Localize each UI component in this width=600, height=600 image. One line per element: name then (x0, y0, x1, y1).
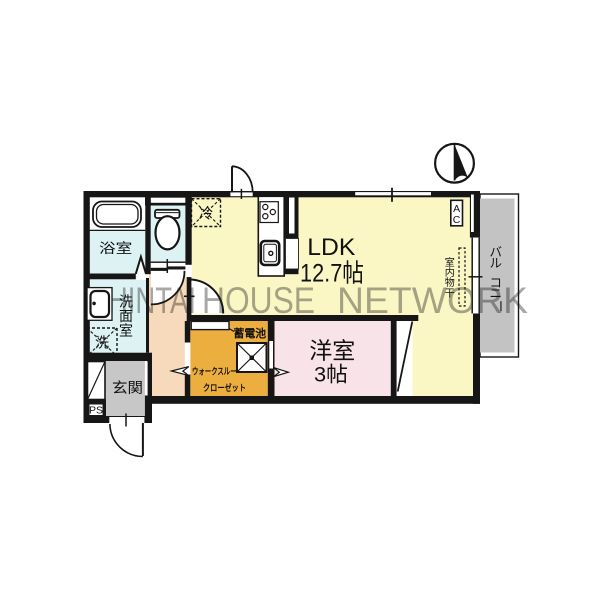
svg-text:干: 干 (445, 288, 455, 299)
svg-text:室: 室 (119, 323, 133, 339)
svg-text:玄関: 玄関 (112, 380, 143, 397)
svg-text:冷: 冷 (199, 205, 214, 222)
svg-text:3帖: 3帖 (314, 364, 348, 387)
svg-text:PS: PS (89, 405, 103, 417)
svg-text:物: 物 (445, 276, 455, 289)
svg-text:ニ: ニ (490, 287, 503, 301)
svg-text:C: C (453, 214, 461, 226)
svg-text:ー: ー (493, 300, 507, 313)
svg-text:ウォークスルー: ウォークスルー (192, 367, 237, 377)
svg-text:洗: 洗 (95, 335, 109, 351)
svg-text:内: 内 (445, 266, 455, 279)
svg-text:LDK: LDK (307, 234, 355, 261)
svg-text:浴室: 浴室 (99, 240, 132, 256)
svg-text:クローゼット: クローゼット (203, 382, 246, 393)
svg-text:洋室: 洋室 (309, 338, 355, 364)
svg-text:12.7帖: 12.7帖 (300, 260, 364, 288)
svg-text:ル: ル (490, 257, 503, 271)
svg-text:室: 室 (445, 256, 455, 269)
svg-text:蓄電池: 蓄電池 (234, 326, 267, 340)
svg-text:HOUSE: HOUSE (202, 280, 315, 321)
